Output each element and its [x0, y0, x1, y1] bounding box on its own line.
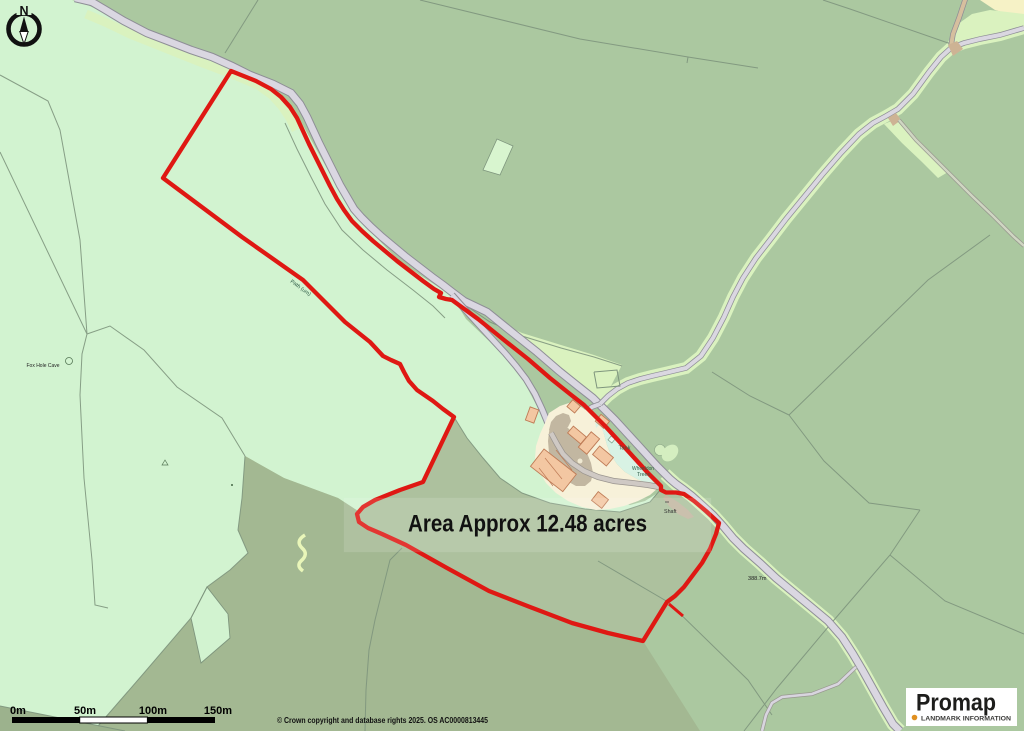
svg-text:0m: 0m — [10, 705, 26, 717]
svg-text:LANDMARK INFORMATION: LANDMARK INFORMATION — [921, 716, 1011, 723]
svg-text:Fox Hole Cave: Fox Hole Cave — [27, 363, 60, 369]
svg-text:Tank: Tank — [619, 446, 632, 452]
svg-text:Shaft: Shaft — [664, 509, 677, 515]
svg-text:Area Approx 12.48 acres: Area Approx 12.48 acres — [408, 511, 647, 538]
svg-text:Promap: Promap — [916, 690, 996, 717]
svg-text:388.7m: 388.7m — [748, 576, 767, 582]
svg-text:50m: 50m — [74, 705, 96, 717]
svg-text:N: N — [19, 4, 28, 18]
svg-text:Trees: Trees — [637, 472, 650, 478]
svg-text:© Crown copyright and database: © Crown copyright and database rights 20… — [277, 716, 489, 725]
svg-text:100m: 100m — [139, 705, 167, 717]
svg-text:150m: 150m — [204, 705, 232, 717]
